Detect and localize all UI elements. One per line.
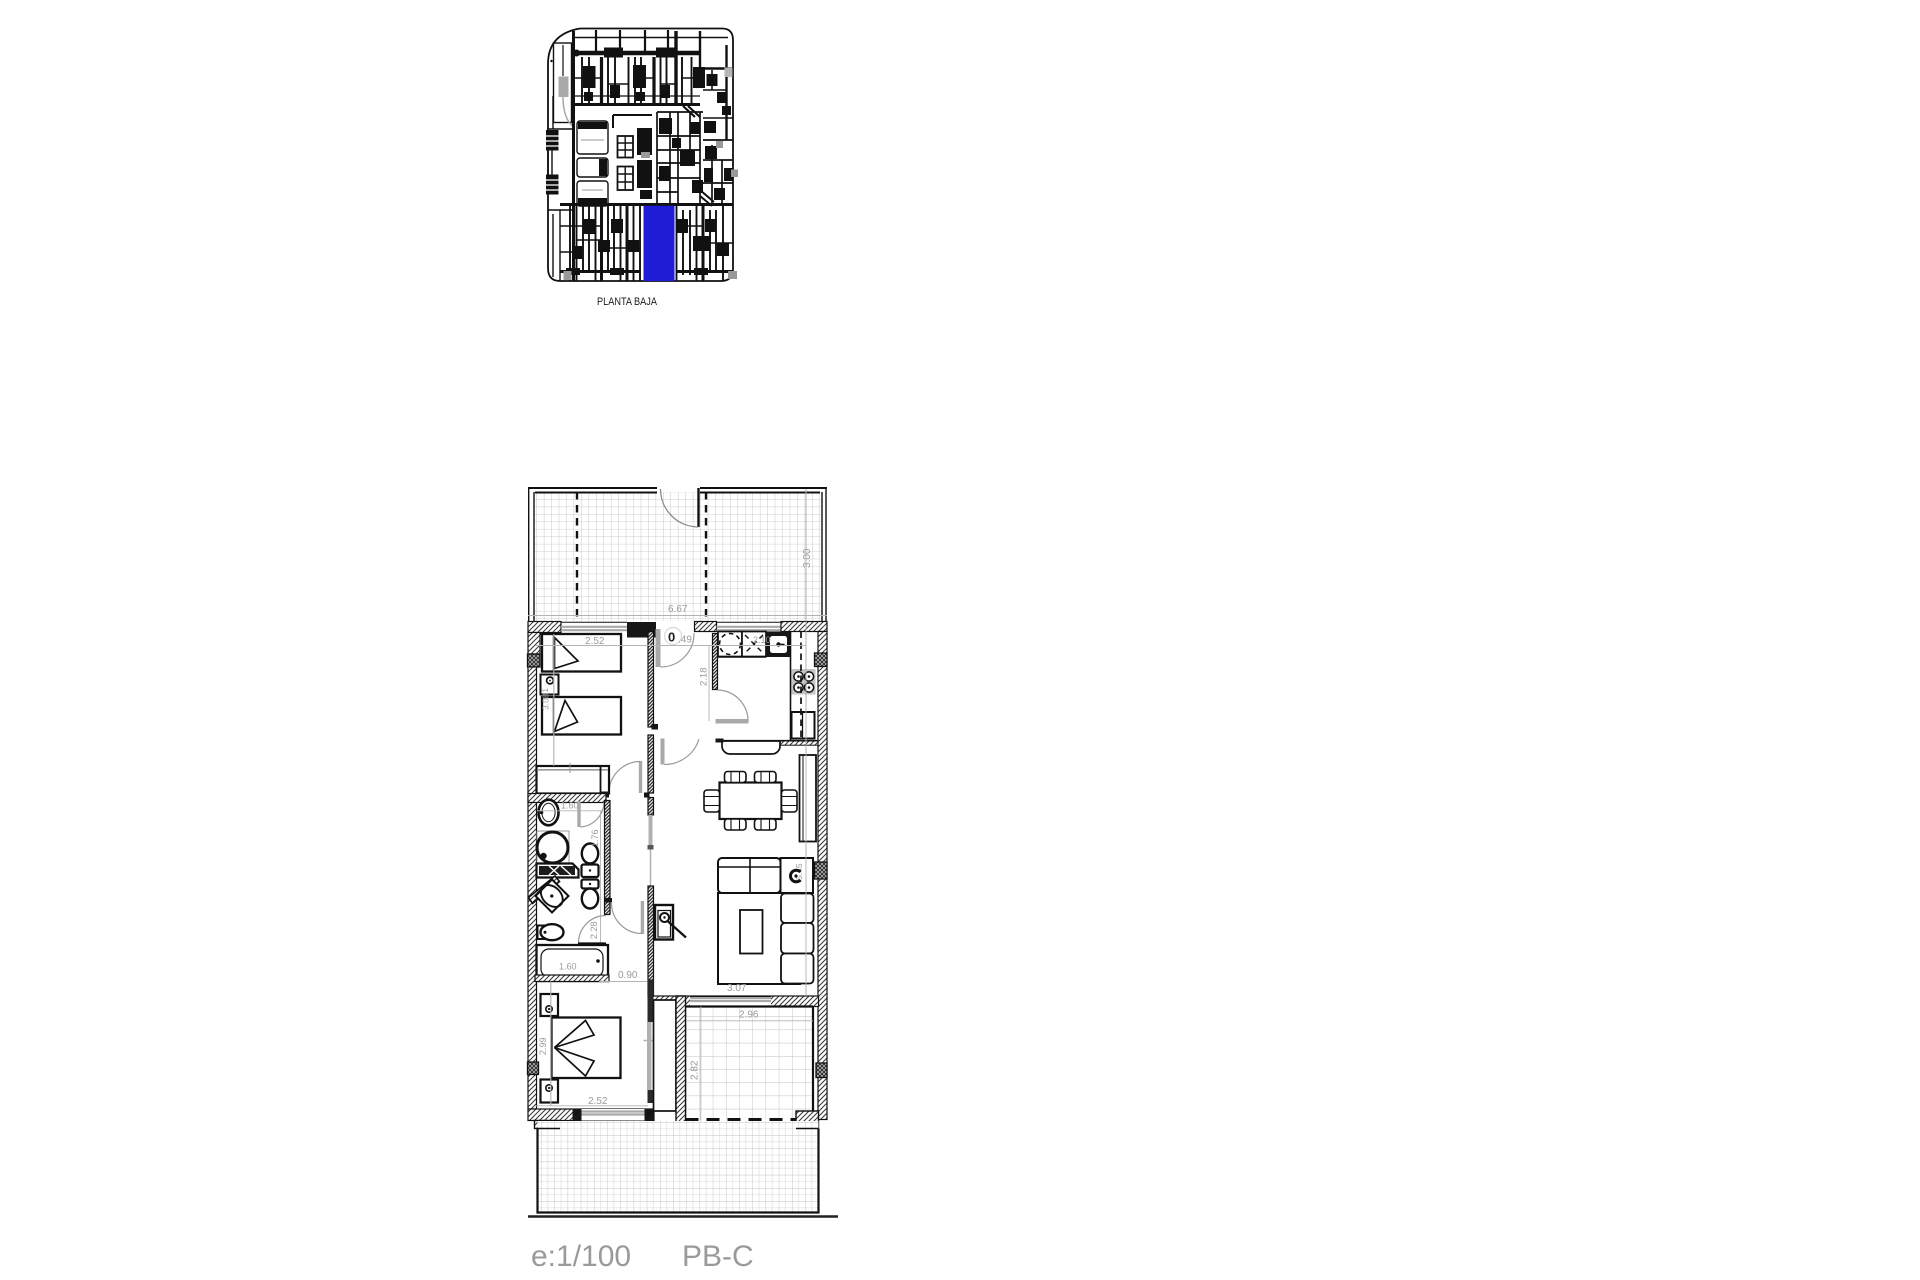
svg-text:1.60: 1.60	[561, 801, 579, 811]
svg-text:0: 0	[668, 630, 675, 645]
svg-text:2.96: 2.96	[739, 1010, 759, 1021]
svg-text:.49: .49	[678, 635, 692, 646]
svg-text:3.08: 3.08	[541, 693, 551, 710]
svg-text:2.52: 2.52	[588, 1096, 608, 1107]
svg-text:1.60: 1.60	[559, 962, 577, 972]
svg-text:6.67: 6.67	[668, 604, 688, 615]
svg-text:2.99: 2.99	[538, 1037, 548, 1055]
svg-text:3.00: 3.00	[802, 548, 813, 568]
svg-text:1: 1	[541, 688, 550, 693]
svg-text:3.07: 3.07	[727, 983, 747, 994]
svg-text:2.18: 2.18	[699, 668, 710, 687]
svg-text:1.76: 1.76	[590, 829, 600, 847]
svg-text:0.90: 0.90	[618, 970, 638, 981]
svg-text:PLANTA BAJA: PLANTA BAJA	[597, 296, 658, 308]
svg-text:2.28: 2.28	[589, 921, 599, 939]
svg-text:e:1/100: e:1/100	[531, 1240, 631, 1273]
svg-text:2.82: 2.82	[690, 1060, 701, 1080]
svg-text:PB-C: PB-C	[682, 1240, 754, 1273]
svg-text:2.10: 2.10	[753, 635, 771, 645]
